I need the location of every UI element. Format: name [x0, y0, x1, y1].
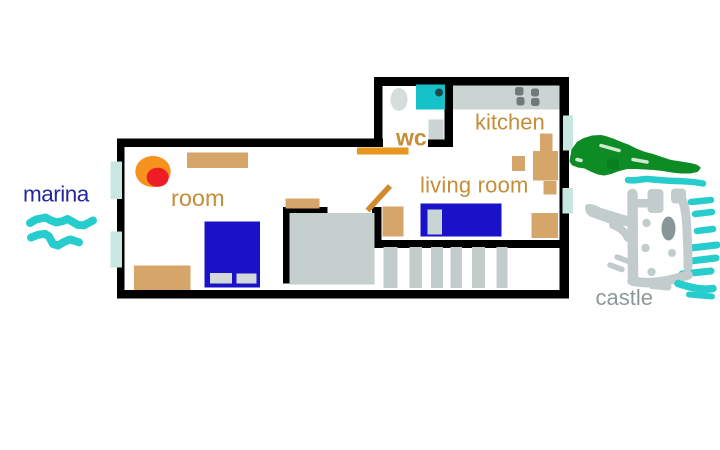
svg-text:castle: castle: [596, 285, 653, 310]
svg-text:kitchen: kitchen: [475, 110, 545, 135]
svg-text:wc: wc: [395, 125, 427, 151]
svg-text:marina: marina: [23, 182, 90, 207]
svg-text:room: room: [171, 185, 225, 211]
svg-text:living room: living room: [420, 173, 529, 198]
